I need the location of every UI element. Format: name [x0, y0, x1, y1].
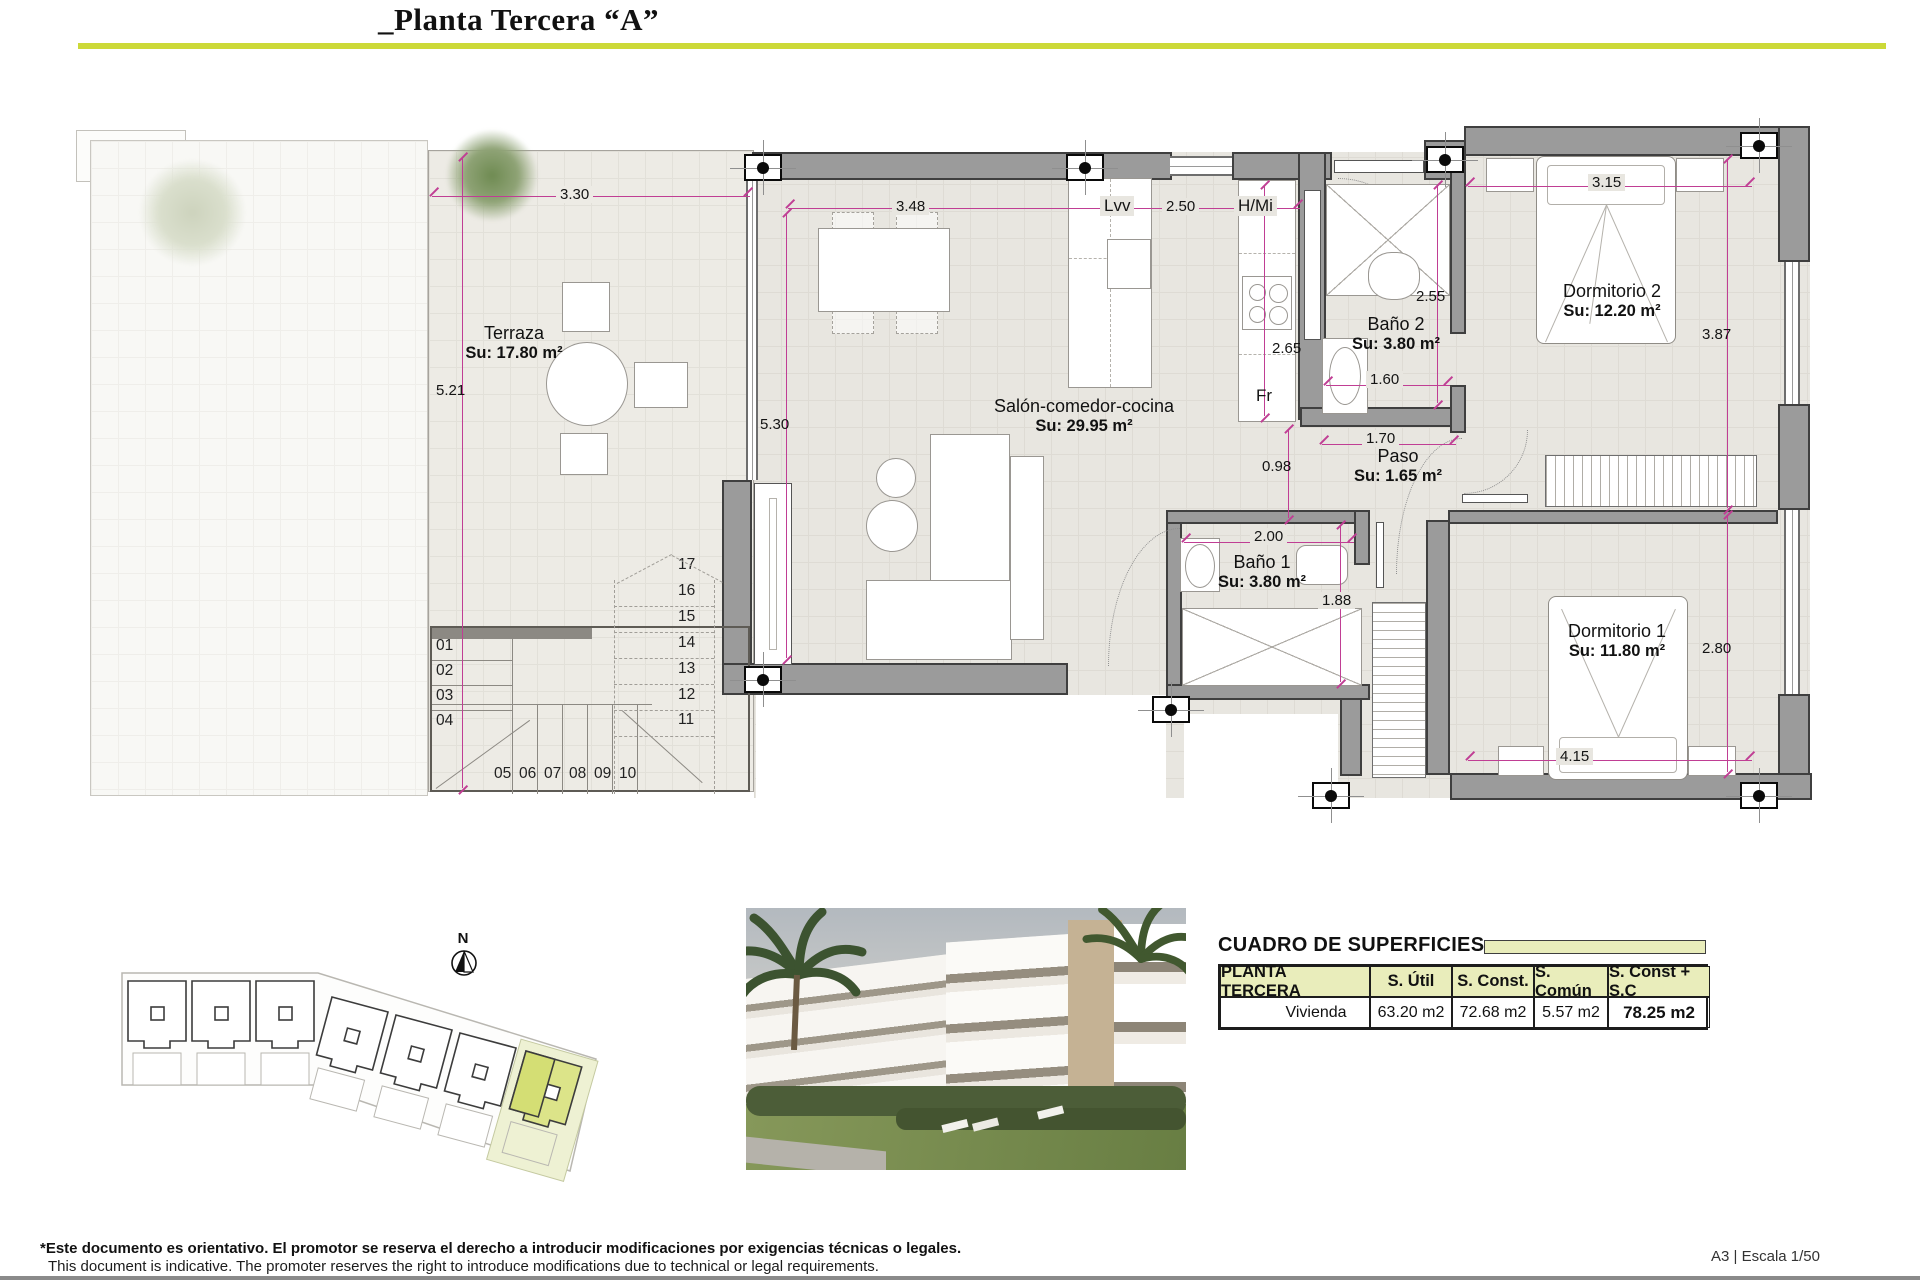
photo-palm-tree [1076, 908, 1186, 1024]
exterior-gap [756, 695, 1166, 798]
terrace-chair [560, 433, 608, 475]
dimension-line [788, 208, 1300, 209]
table-row-cell: Vivienda [1220, 997, 1370, 1028]
dimension-label: 3.15 [1588, 174, 1625, 191]
window [1784, 262, 1800, 404]
room-label-terraza: Terraza Su: 17.80 m² [465, 323, 562, 363]
dimension-label: 3.87 [1698, 326, 1735, 343]
photo-palm-tree [746, 908, 874, 1050]
dimension-label: 2.50 [1162, 198, 1199, 215]
room-label-paso: Paso Su: 1.65 m² [1354, 446, 1442, 486]
door-leaf [1376, 522, 1384, 588]
column-marker [1426, 146, 1464, 173]
unit-name: Vivienda [1263, 1004, 1369, 1022]
wardrobe [1545, 455, 1757, 507]
terrace-chair [634, 362, 688, 408]
table-header-cell: S. Const. [1452, 966, 1534, 997]
room-label-salon: Salón-comedor-cocina Su: 29.95 m² [994, 396, 1174, 436]
wall [1340, 698, 1362, 776]
coffee-table [866, 500, 918, 552]
window [1784, 510, 1800, 694]
dimension-label: 0.98 [1258, 458, 1295, 475]
dimension-label: 3.30 [556, 186, 593, 203]
column-marker [1066, 154, 1104, 181]
dining-table [818, 228, 950, 312]
tree-faded [140, 160, 245, 265]
surfaces-table-title: CUADRO DE SUPERFICIES [1218, 934, 1484, 957]
table-header-cell: S. Útil [1370, 966, 1452, 997]
tv-unit [1010, 456, 1044, 640]
site-plan [118, 945, 628, 1195]
nightstand [1498, 746, 1544, 776]
wardrobe [1372, 602, 1426, 778]
wall-column [1778, 404, 1810, 510]
building-render-photo [746, 908, 1186, 1170]
column-marker [1312, 782, 1350, 809]
dimension-line [1468, 760, 1752, 761]
total-surface-value: 78.25 m2 [1608, 997, 1710, 1028]
dimension-line [786, 214, 787, 658]
room-label-dorm2: Dormitorio 2 Su: 12.20 m² [1563, 281, 1661, 321]
room-label-bano1: Baño 1 Su: 3.80 m² [1218, 552, 1306, 592]
dimension-label: 2.65 [1268, 340, 1305, 357]
dimension-label: 4.15 [1556, 748, 1593, 765]
disclaimer-es: *Este documento es orientativo. El promo… [40, 1240, 961, 1257]
column-marker [744, 154, 782, 181]
room-label-dorm1: Dormitorio 1 Su: 11.80 m² [1568, 621, 1666, 661]
staircase [430, 626, 750, 792]
dimension-line [462, 158, 463, 788]
site-building [128, 981, 598, 1181]
column-marker [1740, 132, 1778, 159]
window-sliding-door [746, 180, 758, 480]
wall [1450, 385, 1466, 433]
surfaces-table: PLANTA TERCERA S. Útil S. Const. S. Comú… [1218, 964, 1708, 1030]
wall [752, 152, 1172, 180]
photo-hedge [896, 1108, 1186, 1130]
dimension-label: 5.21 [432, 382, 469, 399]
table-header-cell: S. Común [1534, 966, 1608, 997]
dimension-label: 3.48 [892, 198, 929, 215]
sofa-chaise [866, 580, 1012, 660]
dishwasher-label: Lvv [1100, 196, 1134, 216]
dimension-label: 2.80 [1698, 640, 1735, 657]
terrace-table [562, 282, 610, 332]
neighbor-terrace [90, 140, 428, 796]
stair-step-number: 16 [678, 582, 695, 600]
dimension-label: 1.70 [1362, 430, 1399, 447]
column-marker [1740, 782, 1778, 809]
shaft-niche [1304, 190, 1321, 340]
floor-plan-sheet: _Planta Tercera “A” [0, 0, 1920, 1280]
stair-step-number: 15 [678, 608, 695, 626]
page-title: _Planta Tercera “A” [378, 2, 659, 38]
column-marker [744, 666, 782, 693]
coffee-table [876, 458, 916, 498]
washbasin [1180, 538, 1220, 592]
built-surface-value: 72.68 m2 [1452, 997, 1534, 1028]
exterior-gap [754, 130, 1464, 152]
dimension-line [1264, 186, 1265, 416]
dimension-label: 2.55 [1412, 288, 1449, 305]
fridge-label: Fr [1256, 386, 1272, 406]
accent-rule [78, 43, 1886, 49]
door-leaf [1462, 494, 1528, 503]
entry-door-leaf [1334, 160, 1424, 173]
title-accent-bar [1484, 940, 1706, 954]
cooktop [1242, 276, 1292, 330]
dimension-label: 5.30 [756, 416, 793, 433]
room-label-bano2: Baño 2 Su: 3.80 m² [1352, 314, 1440, 354]
table-header-cell: S. Const + S.C [1608, 966, 1710, 997]
tree [446, 128, 538, 223]
wall [1166, 510, 1370, 524]
wall [1354, 510, 1370, 565]
table-header-cell: PLANTA TERCERA [1220, 966, 1370, 997]
column-marker [1152, 696, 1190, 723]
dimension-label: 1.60 [1366, 371, 1403, 388]
disclaimer-en: This document is indicative. The promote… [48, 1258, 879, 1275]
washer-column-label: H/Mi [1234, 196, 1277, 216]
sheet-scale-label: A3 | Escala 1/50 [1711, 1248, 1820, 1265]
bottom-border [0, 1276, 1920, 1280]
shower [1182, 608, 1362, 686]
common-surface-value: 5.57 m2 [1534, 997, 1608, 1028]
window [1170, 156, 1234, 176]
wall [1450, 156, 1466, 334]
dimension-label: 2.00 [1250, 528, 1287, 545]
dimension-label: 1.88 [1318, 592, 1355, 609]
useful-surface-value: 63.20 m2 [1370, 997, 1452, 1028]
